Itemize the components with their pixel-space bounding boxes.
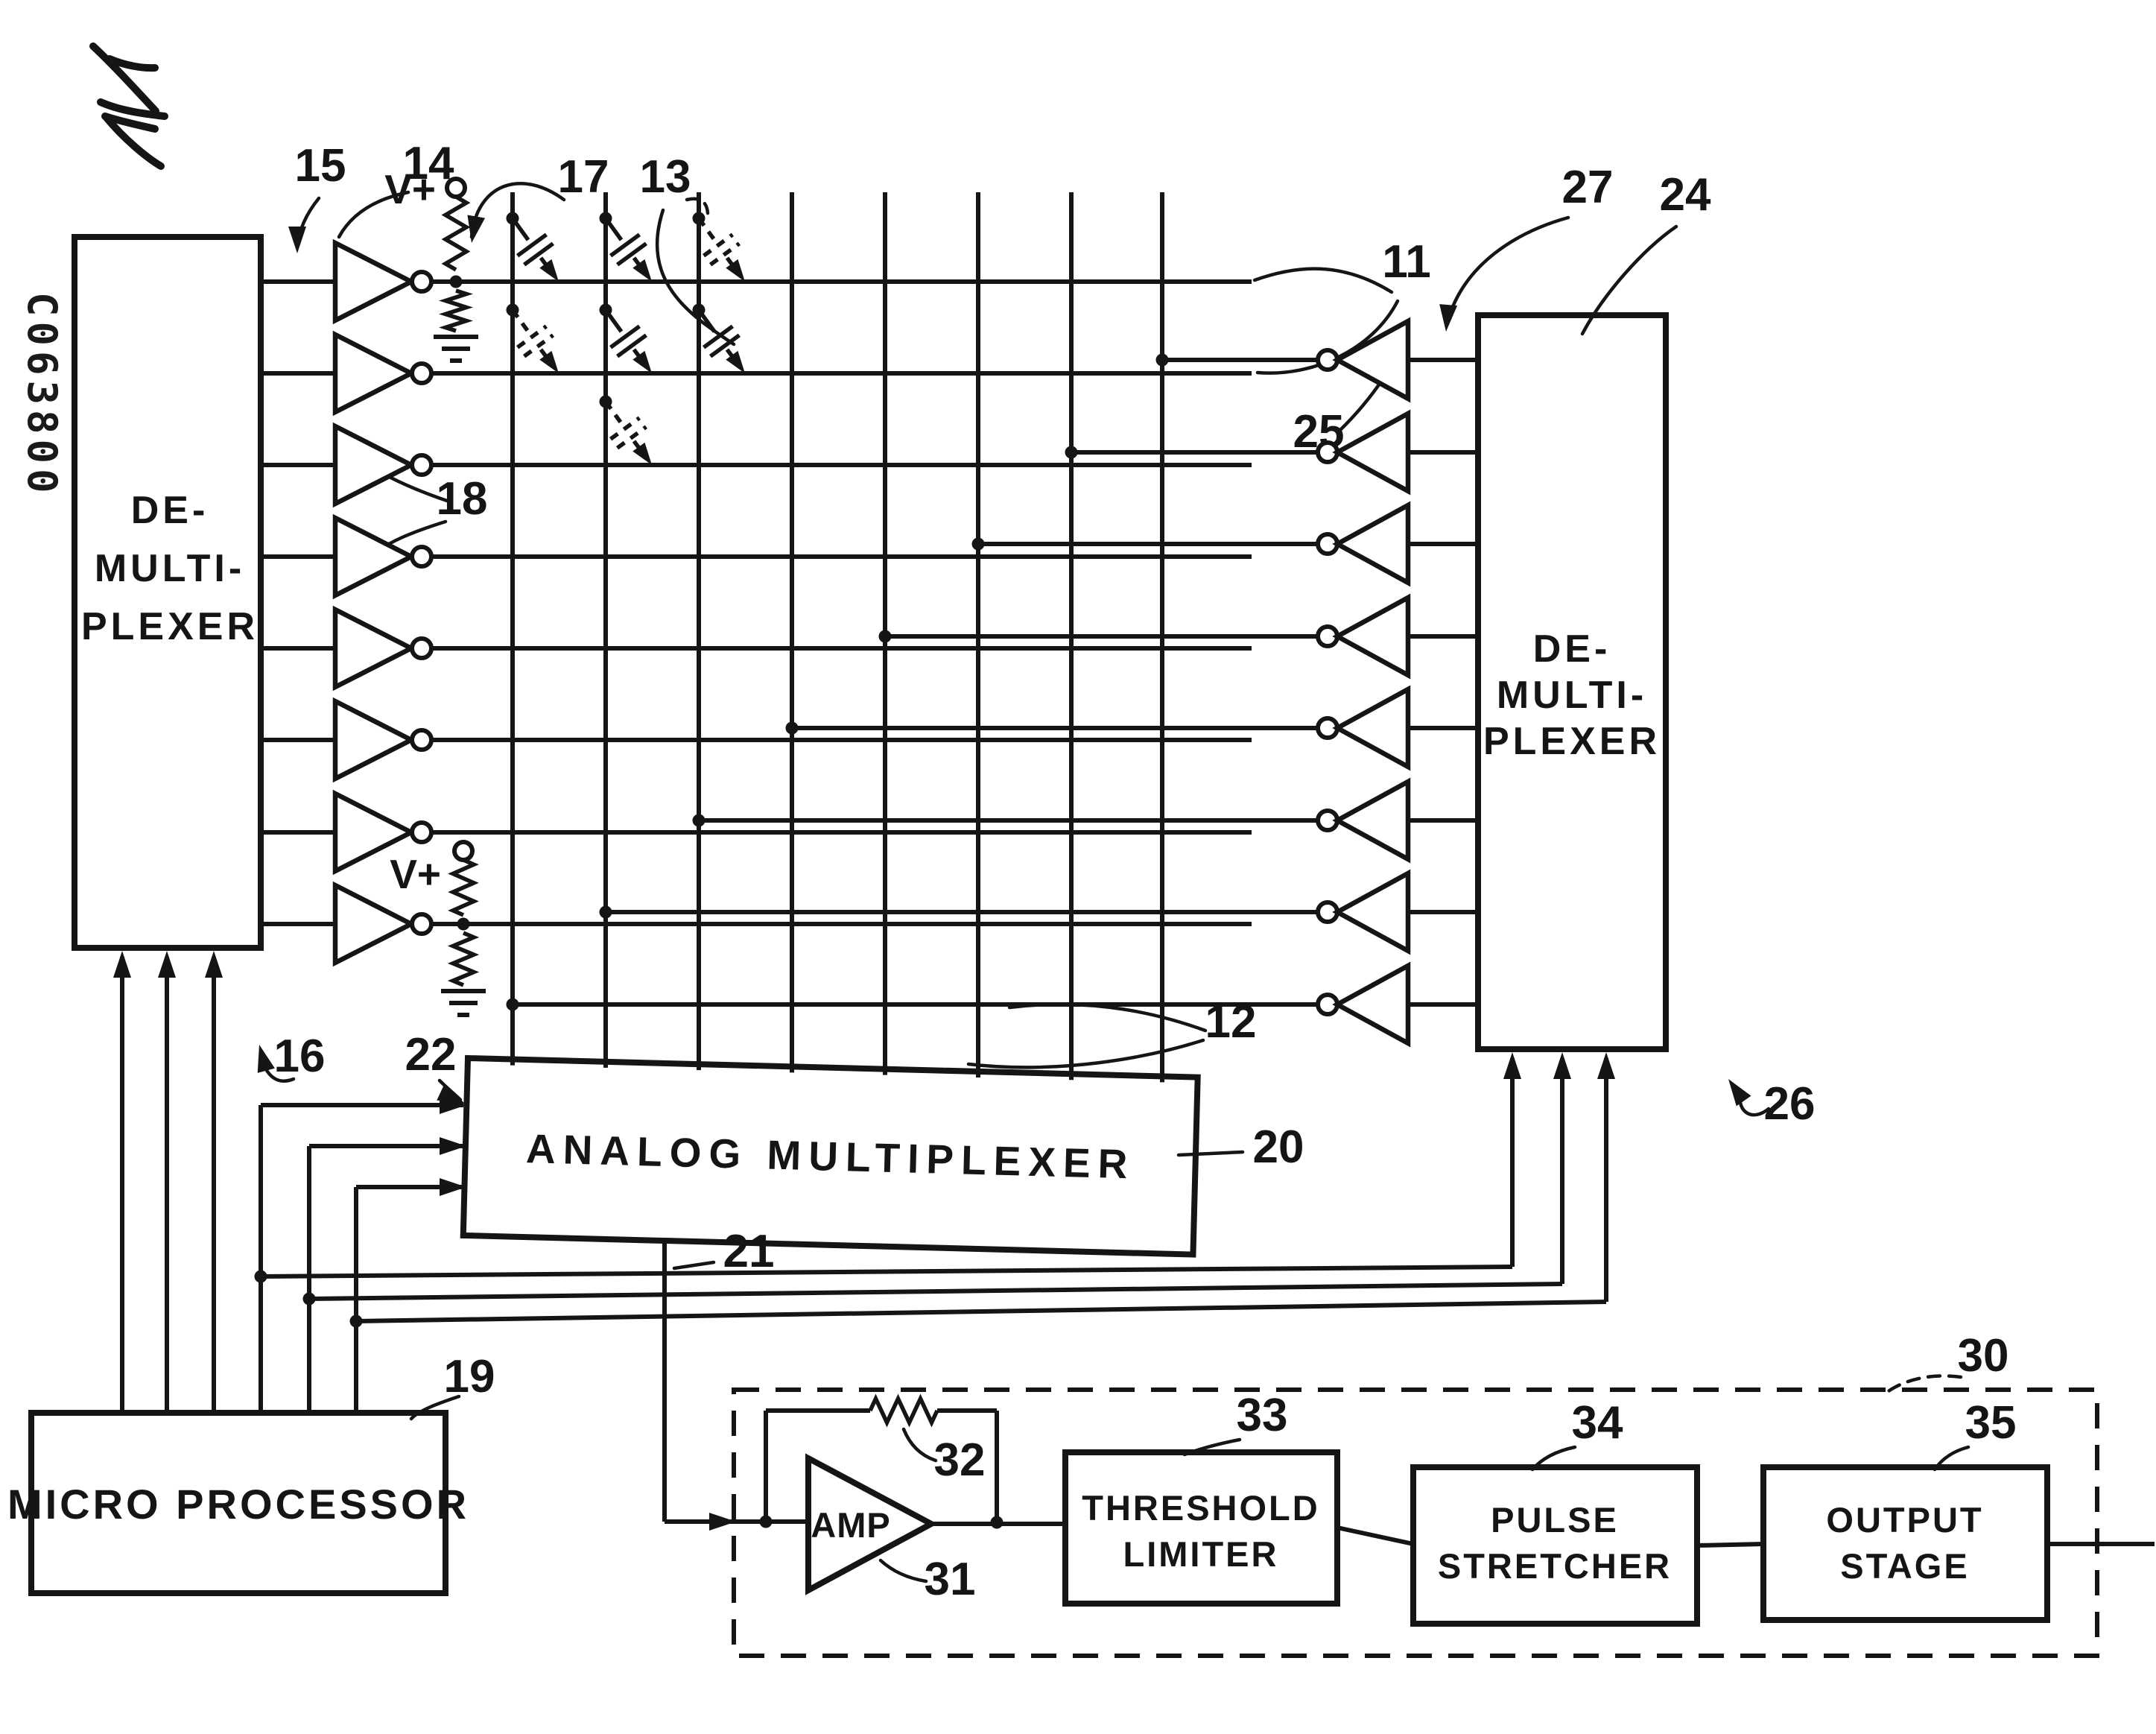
patent-figure-page: C063800 DE- MULTI- PLEXER DE- MULTI- PLE… [0, 0, 2156, 1734]
buffer-output-bubble [412, 823, 431, 842]
left-demux-label-3: PLEXER [81, 605, 259, 648]
key-capacitor-icon [606, 310, 621, 332]
inverter-icon [1337, 966, 1408, 1043]
inverter-icon [1337, 782, 1408, 859]
right-demultiplexer-box: DE- MULTI- PLEXER [1478, 315, 1666, 1049]
stage-wire [1697, 1544, 1763, 1545]
inverter-icon [1337, 505, 1408, 583]
output-stage-box: OUTPUT STAGE [1763, 1467, 2047, 1620]
junction-dot [760, 1516, 773, 1528]
inverter-icon [1337, 414, 1408, 491]
buffer-icon [335, 610, 411, 687]
ref-26: 26 [1764, 1078, 1816, 1130]
ref-33: 33 [1237, 1390, 1288, 1441]
microprocessor-label: MICRO PROCESSOR [7, 1481, 469, 1528]
buffer-icon [335, 701, 411, 779]
ref-15: 15 [295, 140, 346, 192]
leader-30 [1883, 1376, 1961, 1395]
ref-32: 32 [934, 1434, 986, 1486]
left-demux-label-1: DE- [131, 489, 209, 532]
resistor-icon [870, 1399, 937, 1423]
vplus-terminal [447, 179, 465, 197]
threshold-limiter-label-2: LIMITER [1123, 1534, 1279, 1574]
resistor-icon [446, 291, 466, 331]
key-capacitor-icon [606, 218, 621, 240]
key-capacitor-icon [606, 402, 621, 423]
amp-label: AMP [811, 1505, 890, 1545]
leader-25a [1339, 377, 1384, 431]
ref-16: 16 [274, 1031, 326, 1082]
up-arrowhead-icon [113, 951, 131, 978]
buffer-icon [335, 426, 411, 504]
resistor-icon [453, 860, 474, 915]
leader-12a [1009, 1004, 1205, 1031]
ref-11: 11 [1382, 236, 1431, 288]
buffer-icon [335, 243, 411, 320]
up-arrowhead-icon [1553, 1052, 1571, 1079]
analog-multiplexer-box: ANALOG MULTIPLEXER [463, 1058, 1198, 1255]
label-16-arrow [258, 1045, 275, 1073]
document-stamp: C063800 [19, 292, 66, 499]
leader-11a [1255, 269, 1392, 292]
ref-31: 31 [925, 1554, 976, 1605]
ref-34: 34 [1572, 1397, 1623, 1449]
label-22-arrow [437, 1084, 465, 1104]
amplifier-icon: AMP [808, 1458, 931, 1590]
junction-dot [457, 918, 470, 931]
threshold-limiter-label-1: THRESHOLD [1082, 1488, 1319, 1528]
up-arrowhead-icon [158, 951, 176, 978]
buffer-output-bubble [412, 364, 431, 383]
left-demultiplexer-box: DE- MULTI- PLEXER [74, 237, 261, 948]
threshold-limiter-box: THRESHOLD LIMITER [1065, 1452, 1337, 1604]
right-demux-label-3: PLEXER [1483, 720, 1661, 763]
up-arrowhead-icon [205, 951, 223, 978]
buffer-icon [335, 335, 411, 412]
right-arrowhead-icon [440, 1137, 466, 1155]
output-stage-label-2: STAGE [1840, 1546, 1969, 1586]
junction-dot [450, 276, 463, 288]
buffer-output-bubble [412, 455, 431, 475]
buffer-output-bubble [412, 730, 431, 750]
label-27-arrow [1439, 304, 1457, 332]
microprocessor-box: MICRO PROCESSOR [7, 1413, 469, 1593]
circuit-diagram: C063800 DE- MULTI- PLEXER DE- MULTI- PLE… [0, 0, 2156, 1734]
key-capacitor-icon [699, 218, 714, 240]
right-demux-label-1: DE- [1533, 627, 1611, 671]
handwritten-mark-icon [93, 46, 165, 166]
up-arrowhead-icon [1503, 1052, 1521, 1079]
ref-27: 27 [1562, 162, 1614, 213]
ref-24: 24 [1660, 169, 1711, 221]
buffer-icon [335, 518, 411, 595]
pulse-stretcher-label-1: PULSE [1491, 1500, 1619, 1540]
leader-12b [968, 1040, 1203, 1067]
buffer-output-bubble [412, 547, 431, 566]
inverter-icon [1337, 598, 1408, 675]
resistor-icon [446, 197, 466, 270]
leader-13-long [657, 210, 734, 344]
pulse-stretcher-box: PULSE STRETCHER [1413, 1467, 1697, 1624]
output-stage-label-1: OUTPUT [1826, 1500, 1983, 1540]
leader-31 [881, 1560, 926, 1581]
label-17-arrow [467, 215, 485, 243]
leader-27 [1448, 218, 1568, 322]
vplus-bottom-label: V+ [390, 851, 441, 897]
mp-right-demux-wire [261, 1267, 1512, 1276]
leader-32 [904, 1429, 936, 1461]
label-15-arrow [288, 227, 306, 253]
ref-22: 22 [405, 1029, 457, 1080]
ref-20: 20 [1253, 1121, 1304, 1173]
label-26-arrow [1728, 1079, 1751, 1106]
vplus-terminal [454, 842, 472, 860]
mp-right-demux-wire [309, 1284, 1562, 1299]
buffer-output-bubble [412, 914, 431, 934]
inverter-icon [1337, 873, 1408, 951]
up-arrowhead-icon [1597, 1052, 1615, 1079]
mp-right-demux-wire [356, 1302, 1606, 1321]
ref-30: 30 [1958, 1330, 2009, 1382]
ref-13: 13 [640, 151, 691, 203]
key-capacitor-icon [513, 218, 528, 240]
ref-19: 19 [444, 1351, 495, 1402]
leader-lines [262, 183, 1968, 1581]
right-demux-label-2: MULTI- [1497, 674, 1647, 717]
ref-35: 35 [1965, 1397, 2017, 1449]
buffer-output-bubble [412, 272, 431, 291]
inverter-icon [1337, 689, 1408, 767]
leader-21 [674, 1262, 714, 1268]
stage-wire [1337, 1528, 1413, 1544]
ref-17: 17 [558, 151, 609, 203]
ref-21: 21 [723, 1226, 775, 1277]
resistor-icon [453, 933, 474, 985]
pulse-stretcher-label-2: STRETCHER [1438, 1546, 1672, 1586]
buffer-output-bubble [412, 639, 431, 658]
left-demux-label-2: MULTI- [95, 547, 245, 590]
key-capacitor-icon [513, 310, 528, 332]
